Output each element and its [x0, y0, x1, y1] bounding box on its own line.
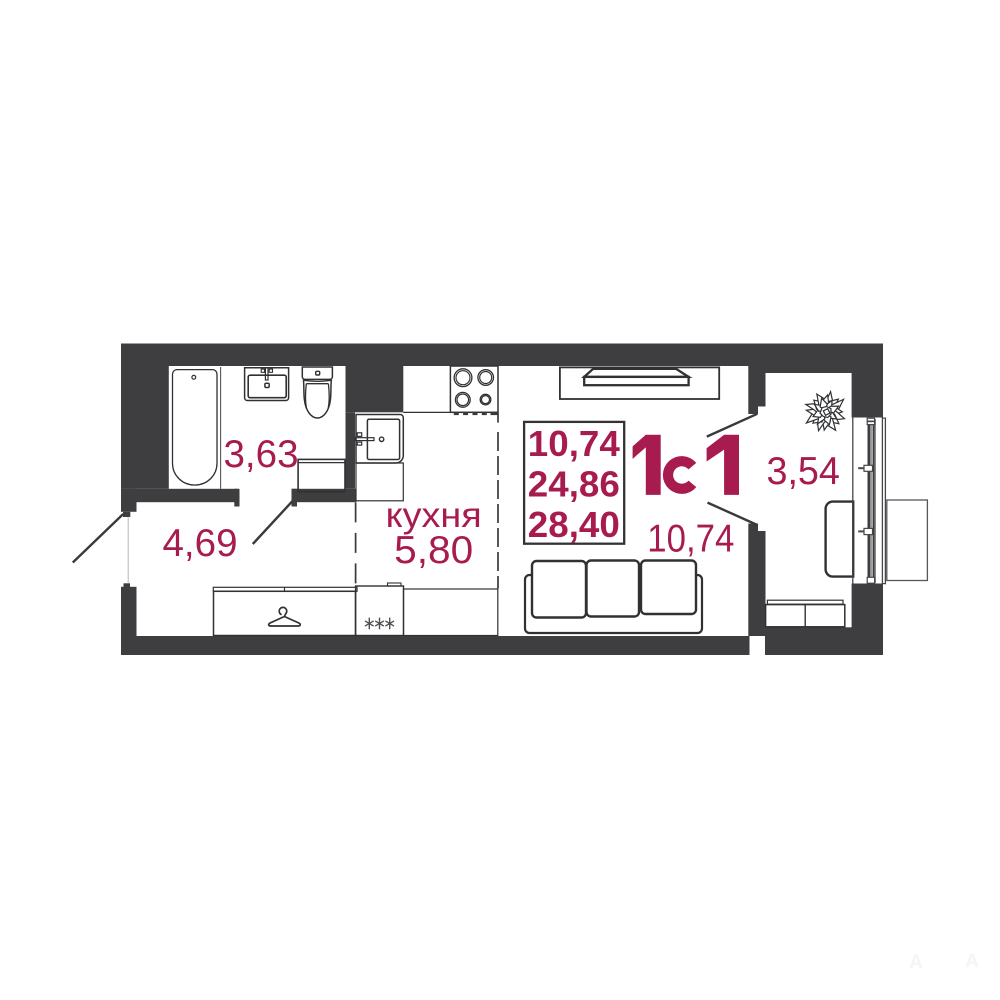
- svg-text:4,69: 4,69: [163, 522, 238, 565]
- svg-text:3,54: 3,54: [766, 450, 840, 493]
- svg-text:10,74: 10,74: [528, 423, 621, 464]
- svg-text:24,86: 24,86: [528, 464, 620, 505]
- svg-text:10,74: 10,74: [647, 518, 734, 561]
- svg-text:А: А: [965, 951, 979, 972]
- svg-text:3,63: 3,63: [224, 433, 299, 476]
- svg-text:28,40: 28,40: [528, 504, 620, 545]
- svg-text:5,80: 5,80: [394, 529, 473, 572]
- svg-text:А: А: [909, 952, 923, 973]
